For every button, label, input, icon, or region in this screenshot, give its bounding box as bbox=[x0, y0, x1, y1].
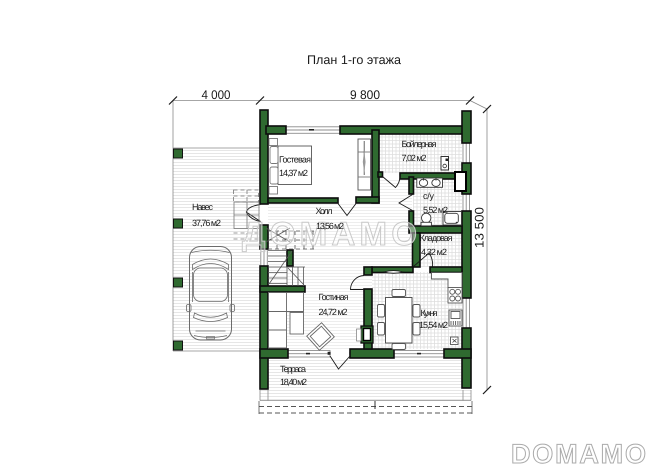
svg-text:План 1-го этажа: План 1-го этажа bbox=[307, 53, 401, 67]
svg-text:5,52 м2: 5,52 м2 bbox=[423, 205, 448, 215]
svg-text:9 800: 9 800 bbox=[350, 88, 380, 102]
svg-text:13 500: 13 500 bbox=[473, 207, 487, 248]
svg-text:14,37 м2: 14,37 м2 bbox=[279, 168, 308, 178]
svg-text:13,56 м2: 13,56 м2 bbox=[316, 221, 344, 231]
svg-text:7,02 м2: 7,02 м2 bbox=[402, 153, 427, 163]
svg-text:с/у: с/у bbox=[423, 191, 435, 201]
svg-text:Холл: Холл bbox=[316, 206, 333, 216]
svg-text:Бойлерная: Бойлерная bbox=[402, 139, 437, 149]
svg-text:37,76 м2: 37,76 м2 bbox=[192, 218, 221, 228]
svg-text:Гостиная: Гостиная bbox=[319, 292, 349, 302]
svg-text:4,32 м2: 4,32 м2 bbox=[421, 247, 447, 257]
svg-text:Гостевая: Гостевая bbox=[279, 155, 311, 165]
svg-text:24,72 м2: 24,72 м2 bbox=[319, 307, 348, 317]
svg-text:4 000: 4 000 bbox=[202, 88, 231, 102]
svg-text:15,54 м2: 15,54 м2 bbox=[419, 320, 448, 330]
svg-text:Кладовая: Кладовая bbox=[420, 233, 453, 243]
svg-text:18,40 м2: 18,40 м2 bbox=[280, 377, 307, 387]
svg-text:Терраса: Терраса bbox=[280, 364, 306, 374]
svg-text:Кухня: Кухня bbox=[421, 308, 438, 318]
svg-text:Навес: Навес bbox=[192, 202, 214, 212]
